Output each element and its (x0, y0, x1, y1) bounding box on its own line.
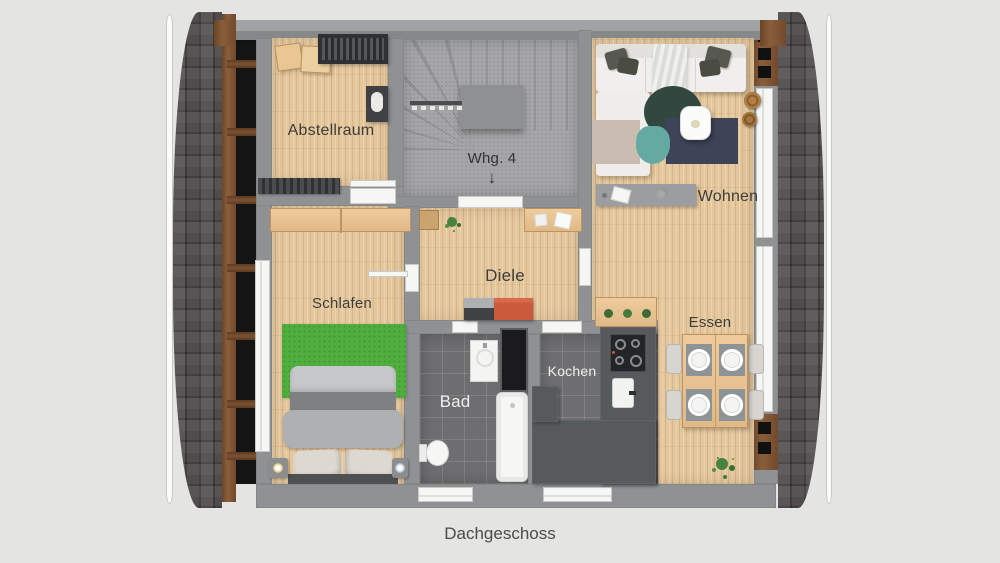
rug-beige (592, 120, 640, 164)
burner (615, 339, 626, 350)
left-gutter (166, 14, 173, 504)
paper-sheet (534, 213, 547, 226)
kitchen-counter-stub (532, 386, 558, 422)
bed-duvet (290, 366, 396, 394)
clothes-rack (318, 34, 388, 64)
wohnen-door-opening (579, 248, 591, 286)
cardboard-box (274, 42, 303, 71)
plate (688, 349, 710, 371)
coffee-table (680, 106, 711, 140)
kitchen-sink (612, 378, 634, 408)
radiator (258, 178, 340, 194)
room-label-abstellraum: Abstellraum (271, 122, 391, 140)
faucet (483, 343, 487, 348)
bed-headboard (288, 474, 398, 484)
hall-side-table (419, 210, 439, 230)
skylight-kochen (543, 487, 612, 502)
bed-blanket (283, 410, 403, 448)
entrance-door-threshold (458, 196, 523, 208)
kitchen-bar-counter (595, 297, 657, 327)
dining-chair (666, 390, 682, 420)
top-right-corner-wood (760, 20, 786, 46)
table-lamp (395, 463, 405, 473)
sideboard-divider (340, 209, 342, 233)
dresser-orange (494, 298, 533, 320)
burner (615, 356, 624, 365)
stair-railing-balusters (412, 106, 462, 110)
toilet-bowl (426, 440, 449, 466)
vent-opening (758, 442, 771, 454)
hall-desk (524, 208, 582, 232)
floorplan-canvas: Abstellraum Schlafen Diele Wohnen Essen … (0, 0, 1000, 563)
plate (688, 394, 710, 416)
floor-caption: Dachgeschoss (400, 524, 600, 544)
tub-drain (510, 403, 515, 408)
wall-schlafen-bad (404, 206, 420, 484)
basket (744, 92, 761, 109)
sofa-seat-seam (645, 58, 646, 92)
right-window-lower (756, 246, 773, 412)
burner (631, 339, 640, 348)
top-left-corner-wood (214, 20, 236, 46)
room-label-wohnen: Wohnen (693, 188, 763, 206)
candle-decor (691, 120, 700, 128)
left-window (255, 260, 270, 452)
wohnen-sideboard (596, 184, 696, 206)
unit-label: Whg. 4 (452, 150, 532, 167)
hall-plant (440, 210, 464, 234)
knob (602, 193, 607, 198)
schlafen-door-leaf (368, 271, 408, 277)
dining-table (682, 334, 748, 428)
bed-runner (290, 392, 396, 412)
room-label-schlafen: Schlafen (292, 295, 392, 312)
stair-landing (460, 85, 524, 129)
room-label-kochen: Kochen (540, 363, 604, 379)
knob-light (612, 351, 615, 354)
table-lamp (273, 463, 283, 473)
basin-bowl (476, 349, 494, 367)
book-stack (611, 186, 632, 204)
sofa-cushion (617, 56, 639, 75)
dining-chair (748, 344, 764, 374)
kochen-threshold (542, 321, 582, 333)
sofa-seat-seam (695, 58, 696, 92)
decor-branch (654, 187, 668, 201)
dresser-gray (464, 298, 494, 320)
potted-plant (704, 448, 738, 482)
laundry-cart (366, 86, 388, 122)
dining-chair (748, 390, 764, 420)
basket (742, 112, 757, 127)
herb-plant (623, 309, 632, 318)
left-roof-shingles (173, 12, 222, 508)
towel (371, 92, 383, 112)
burner (630, 355, 642, 367)
cooktop (610, 334, 646, 372)
washbasin (470, 340, 498, 382)
paper-sheet (554, 212, 573, 230)
room-label-bad: Bad (425, 392, 485, 412)
dining-chair (666, 344, 682, 374)
right-gutter (826, 14, 832, 504)
herb-plant (642, 309, 651, 318)
bad-door-opening (452, 321, 478, 333)
bed (288, 366, 398, 484)
sofa-cushion (699, 59, 721, 78)
bottom-wall (256, 484, 776, 508)
toilet (419, 438, 449, 468)
stair-railing (410, 101, 462, 105)
plate (721, 394, 743, 416)
right-corner-post-bottom (752, 414, 778, 470)
vent-opening (758, 66, 771, 78)
right-roof-shingles (778, 12, 824, 508)
skylight-bad (418, 487, 473, 502)
schlafen-door-opening (405, 264, 419, 292)
sink-faucet (629, 391, 636, 395)
abstellraum-door-leaf (350, 180, 396, 187)
right-window-upper (756, 88, 773, 238)
vent-opening (758, 48, 771, 60)
top-wall (228, 20, 774, 40)
table-seam (715, 335, 716, 429)
rug-teal-oval (636, 126, 670, 164)
bathtub (496, 392, 528, 482)
entrance-arrow-icon: ↓ (452, 168, 532, 188)
plant-foliage (447, 217, 457, 227)
herb-plant (604, 309, 613, 318)
nightstand (268, 458, 288, 478)
kitchen-counter-bottom (532, 420, 656, 484)
plate (721, 349, 743, 371)
hanging-clothes (322, 38, 384, 60)
abstellraum-door-opening (350, 188, 396, 204)
plant-foliage (716, 458, 728, 470)
duct-shaft (500, 328, 528, 392)
room-label-diele: Diele (475, 266, 535, 286)
nightstand (392, 458, 408, 478)
vent-opening (758, 422, 771, 434)
left-roof-beam (222, 14, 236, 502)
room-label-essen: Essen (680, 314, 740, 331)
bedroom-sideboard (270, 208, 411, 232)
